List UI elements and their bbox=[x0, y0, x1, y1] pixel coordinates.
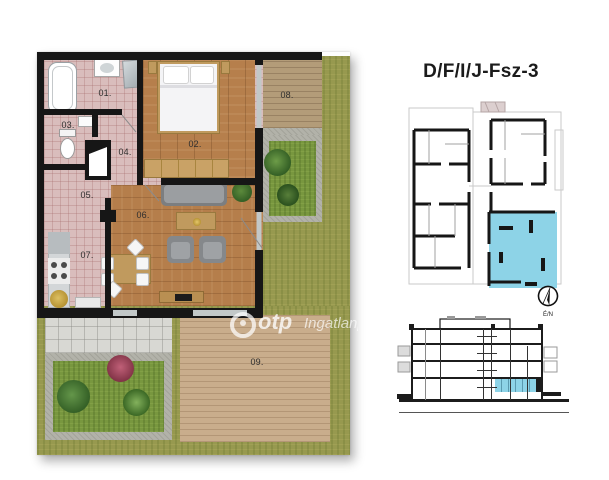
watermark: otp Ingatlanpo bbox=[228, 305, 358, 341]
room-label-06: 06. bbox=[136, 210, 149, 220]
building-section bbox=[395, 316, 573, 420]
highlighted-unit bbox=[489, 212, 557, 288]
room-label-09: 09. bbox=[250, 357, 263, 367]
section-railings bbox=[544, 347, 557, 372]
room-label-07: 07. bbox=[80, 250, 93, 260]
watermark-brand: otp bbox=[258, 309, 292, 335]
room-label-05: 05. bbox=[80, 190, 93, 200]
key-plan bbox=[405, 100, 567, 290]
section-penthouse bbox=[440, 319, 510, 329]
watermark-suffix: Ingatlanpo bbox=[304, 315, 358, 332]
windows bbox=[113, 65, 262, 316]
apartment-floor-plan: 01. 02. 03. 04. 05. 06. 07. 08. 09. bbox=[37, 52, 350, 455]
room-label-02: 02. bbox=[188, 139, 201, 149]
room-label-08: 08. bbox=[280, 90, 293, 100]
room-label-01: 01. bbox=[98, 88, 111, 98]
room-label-03: 03. bbox=[61, 120, 74, 130]
unit-title: D/F/I/J-Fsz-3 bbox=[398, 61, 564, 83]
key-plan-hatch bbox=[481, 102, 505, 112]
section-highlighted-unit bbox=[495, 379, 542, 392]
section-balconies bbox=[398, 346, 410, 372]
room-label-04: 04. bbox=[118, 147, 131, 157]
